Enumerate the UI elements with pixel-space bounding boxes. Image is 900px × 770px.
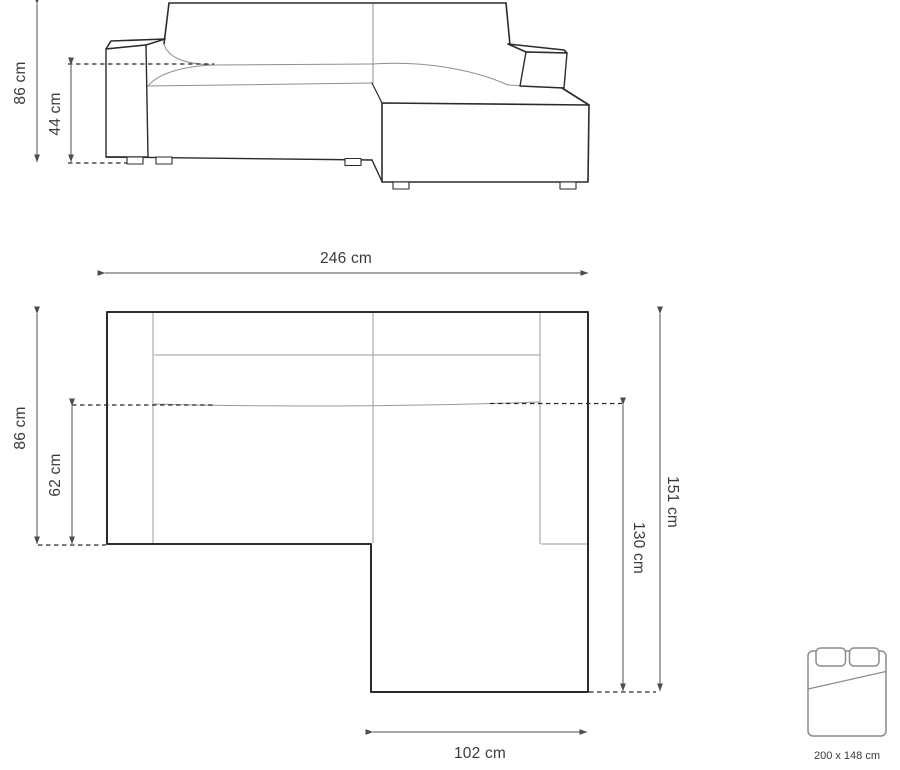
front-leg-4 bbox=[393, 182, 409, 189]
front-chaise-top-right-edge bbox=[562, 88, 589, 105]
front-leg-2 bbox=[156, 157, 172, 164]
front-base-chaise-joint bbox=[372, 160, 382, 182]
plan-outline bbox=[107, 312, 588, 692]
diagram-svg: 86 cm 44 cm 246 cm 86 cm bbox=[0, 0, 900, 770]
front-left-armrest-front bbox=[106, 45, 148, 157]
front-chaise-front-face bbox=[382, 103, 589, 182]
plan-dim-chaise-width: 102 cm bbox=[373, 732, 587, 762]
front-leg-3 bbox=[345, 159, 361, 166]
front-cushion2-top bbox=[373, 63, 508, 85]
sofa-bed-icon: 200 x 148 cm bbox=[808, 648, 886, 762]
front-cushion1-top bbox=[213, 64, 373, 65]
front-seat-curve-left bbox=[148, 65, 213, 86]
front-right-armrest-front bbox=[520, 52, 567, 88]
dim-label-front-height: 86 cm bbox=[12, 61, 29, 104]
front-dim-seat-height: 44 cm bbox=[47, 65, 71, 162]
sofa-front-view: 86 cm 44 cm bbox=[12, 3, 589, 189]
front-leg-1 bbox=[127, 157, 143, 164]
sofa-dimensions-diagram: 86 cm 44 cm 246 cm 86 cm bbox=[0, 0, 900, 770]
front-backrest-seat-seam bbox=[164, 44, 213, 65]
dim-label-total-width: 246 cm bbox=[320, 250, 372, 267]
front-dim-height: 86 cm bbox=[12, 4, 37, 162]
dim-label-seat-depth: 62 cm bbox=[47, 453, 64, 496]
dim-label-chaise-width: 102 cm bbox=[454, 745, 506, 762]
dim-label-depth: 86 cm bbox=[12, 406, 29, 449]
front-seat-front-edge bbox=[148, 83, 372, 86]
front-backrest-left-edge bbox=[164, 3, 169, 44]
bed-size-label: 200 x 148 cm bbox=[814, 750, 880, 762]
plan-dim-chaise-outer: 151 cm bbox=[660, 314, 681, 691]
bed-pillow-left-icon bbox=[816, 648, 846, 666]
dim-label-seat-height: 44 cm bbox=[47, 92, 64, 135]
bed-pillow-right-icon bbox=[850, 648, 880, 666]
front-chaise-left-slant bbox=[372, 83, 382, 103]
front-leg-5 bbox=[560, 182, 576, 189]
plan-dim-depth: 86 cm bbox=[12, 314, 37, 544]
plan-dim-seat-depth: 62 cm bbox=[47, 406, 72, 544]
front-backrest-right-edge bbox=[506, 3, 510, 45]
front-base-bottom bbox=[106, 157, 372, 160]
plan-dim-chaise-inner: 130 cm bbox=[623, 405, 647, 691]
dim-label-chaise-outer: 151 cm bbox=[664, 476, 681, 528]
plan-dim-width: 246 cm bbox=[105, 250, 588, 273]
sofa-top-view: 246 cm 86 cm 62 cm 151 cm 130 cm 102 cm bbox=[12, 250, 681, 762]
dim-label-chaise-inner: 130 cm bbox=[630, 522, 647, 574]
